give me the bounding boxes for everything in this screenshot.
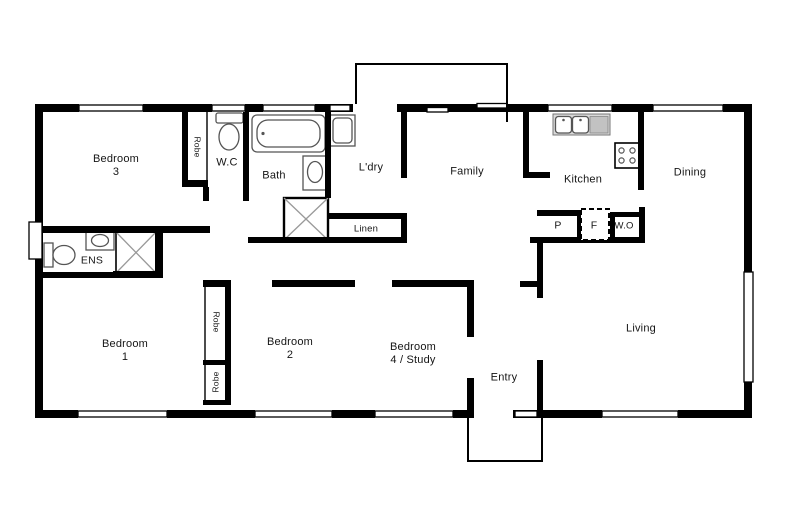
room-label-robe-lower: Robe <box>210 371 223 392</box>
room-label-pantry: P <box>554 220 561 233</box>
room-label-line: F <box>591 220 598 233</box>
room-label-line: P <box>554 220 561 233</box>
room-label-line: 3 <box>93 166 139 179</box>
room-label-line: W.O <box>614 220 633 233</box>
room-label-kitchen: Kitchen <box>564 174 602 187</box>
room-label-wall-oven: W.O <box>614 220 633 233</box>
room-label-bedroom-2: Bedroom2 <box>267 336 313 362</box>
room-label-line: Entry <box>491 372 518 385</box>
room-label-line: Kitchen <box>564 174 602 187</box>
room-label-line: Robe <box>210 371 223 392</box>
room-label-dining: Dining <box>674 167 706 180</box>
room-label-line: Bedroom <box>267 336 313 349</box>
room-label-wc: W.C <box>216 157 237 170</box>
room-label-line: Bath <box>262 170 285 183</box>
room-label-fridge: F <box>591 220 598 233</box>
room-label-living: Living <box>626 323 656 336</box>
room-label-line: Bedroom <box>102 338 148 351</box>
room-label-family: Family <box>450 166 484 179</box>
room-label-line: Robe <box>210 311 223 332</box>
room-label-line: Linen <box>354 223 378 236</box>
room-labels-layer: Bedroom3RobeW.CBathL'dryFamilyKitchenDin… <box>0 0 790 527</box>
room-label-bath: Bath <box>262 170 285 183</box>
room-label-linen: Linen <box>354 223 378 236</box>
room-label-line: 2 <box>267 349 313 362</box>
room-label-line: Bedroom <box>93 153 139 166</box>
room-label-entry: Entry <box>491 372 518 385</box>
room-label-line: 1 <box>102 351 148 364</box>
room-label-laundry: L'dry <box>359 162 384 175</box>
room-label-line: L'dry <box>359 162 384 175</box>
room-label-ensuite: ENS <box>81 255 103 268</box>
room-label-bedroom-3: Bedroom3 <box>93 153 139 179</box>
room-label-line: ENS <box>81 255 103 268</box>
floorplan-canvas: Bedroom3RobeW.CBathL'dryFamilyKitchenDin… <box>0 0 790 527</box>
room-label-bedroom-4: Bedroom4 / Study <box>390 341 436 367</box>
room-label-line: Bedroom <box>390 341 436 354</box>
room-label-line: Living <box>626 323 656 336</box>
room-label-line: Dining <box>674 167 706 180</box>
room-label-line: 4 / Study <box>390 354 436 367</box>
room-label-line: Robe <box>191 136 204 157</box>
room-label-robe-bed3: Robe <box>191 136 204 157</box>
room-label-line: Family <box>450 166 484 179</box>
room-label-robe-upper: Robe <box>210 311 223 332</box>
room-label-bedroom-1: Bedroom1 <box>102 338 148 364</box>
room-label-line: W.C <box>216 157 237 170</box>
